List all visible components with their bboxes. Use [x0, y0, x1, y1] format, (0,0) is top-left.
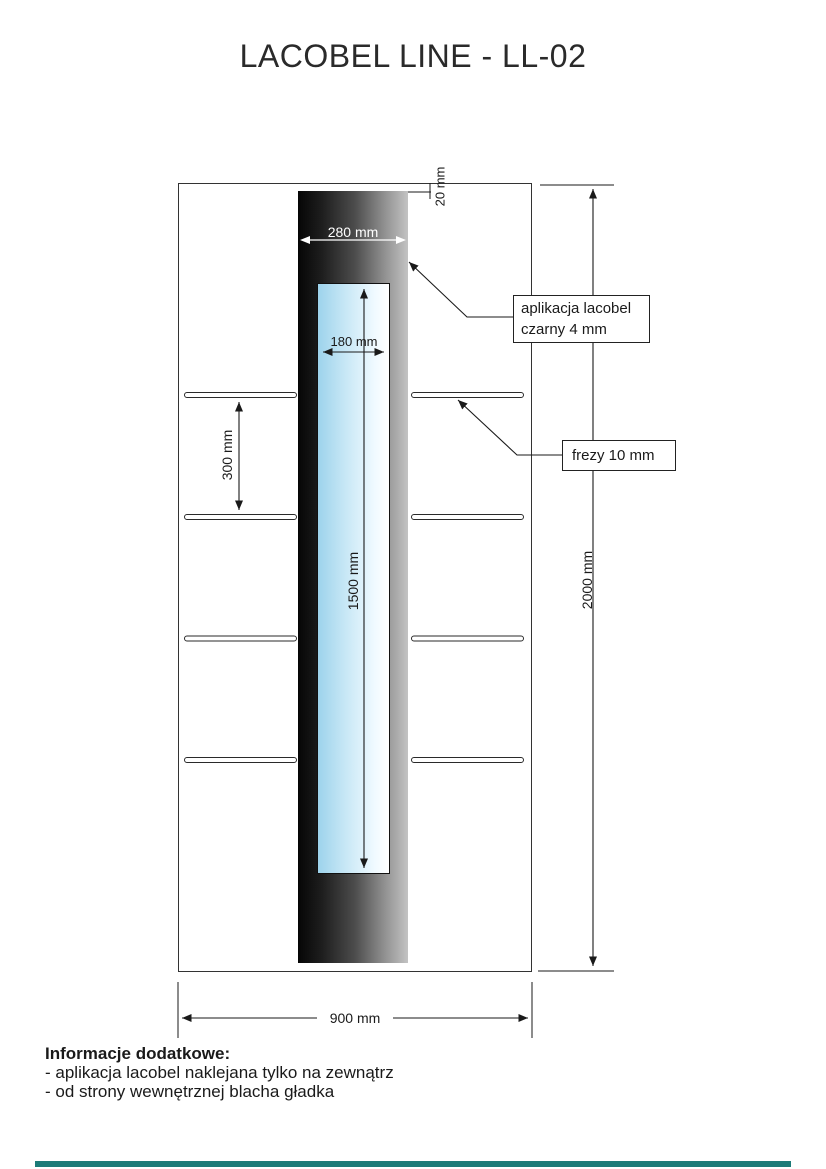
groove-slot	[412, 758, 524, 763]
footer-accent-bar	[35, 1161, 791, 1167]
dim-label-total-height: 2000 mm	[580, 548, 594, 612]
callout-lacobel-line1: aplikacja lacobel	[521, 298, 649, 319]
additional-info-note: - aplikacja lacobel naklejana tylko na z…	[45, 1063, 394, 1082]
dim-label-groove-spacing: 300 mm	[220, 427, 234, 483]
dim-label-stripe-width: 280 mm	[303, 225, 403, 239]
leader-lacobel	[409, 262, 513, 317]
callout-frezy-label: frezy 10 mm	[572, 445, 655, 466]
dim-label-top-offset: 20 mm	[434, 164, 447, 210]
callout-frezy: frezy 10 mm	[562, 440, 676, 471]
groove-slot	[412, 636, 524, 641]
dimension-linework	[0, 0, 826, 1169]
additional-info-note: - od strony wewnętrznej blacha gładka	[45, 1082, 394, 1101]
groove-slot	[185, 393, 297, 398]
groove-slot	[185, 636, 297, 641]
callout-lacobel-application: aplikacja lacobel czarny 4 mm	[513, 295, 650, 343]
additional-info-block: Informacje dodatkowe: - aplikacja lacobe…	[45, 1044, 394, 1101]
dim-label-total-width: 900 mm	[317, 1011, 393, 1025]
groove-slot	[185, 758, 297, 763]
callout-lacobel-line2: czarny 4 mm	[521, 319, 649, 340]
groove-slot	[185, 515, 297, 520]
additional-info-heading: Informacje dodatkowe:	[45, 1044, 394, 1063]
dim-label-glass-width: 180 mm	[312, 335, 396, 348]
leader-frezy	[458, 400, 562, 455]
groove-slot	[412, 515, 524, 520]
dim-label-glass-height: 1500 mm	[346, 550, 360, 612]
groove-slot	[412, 393, 524, 398]
